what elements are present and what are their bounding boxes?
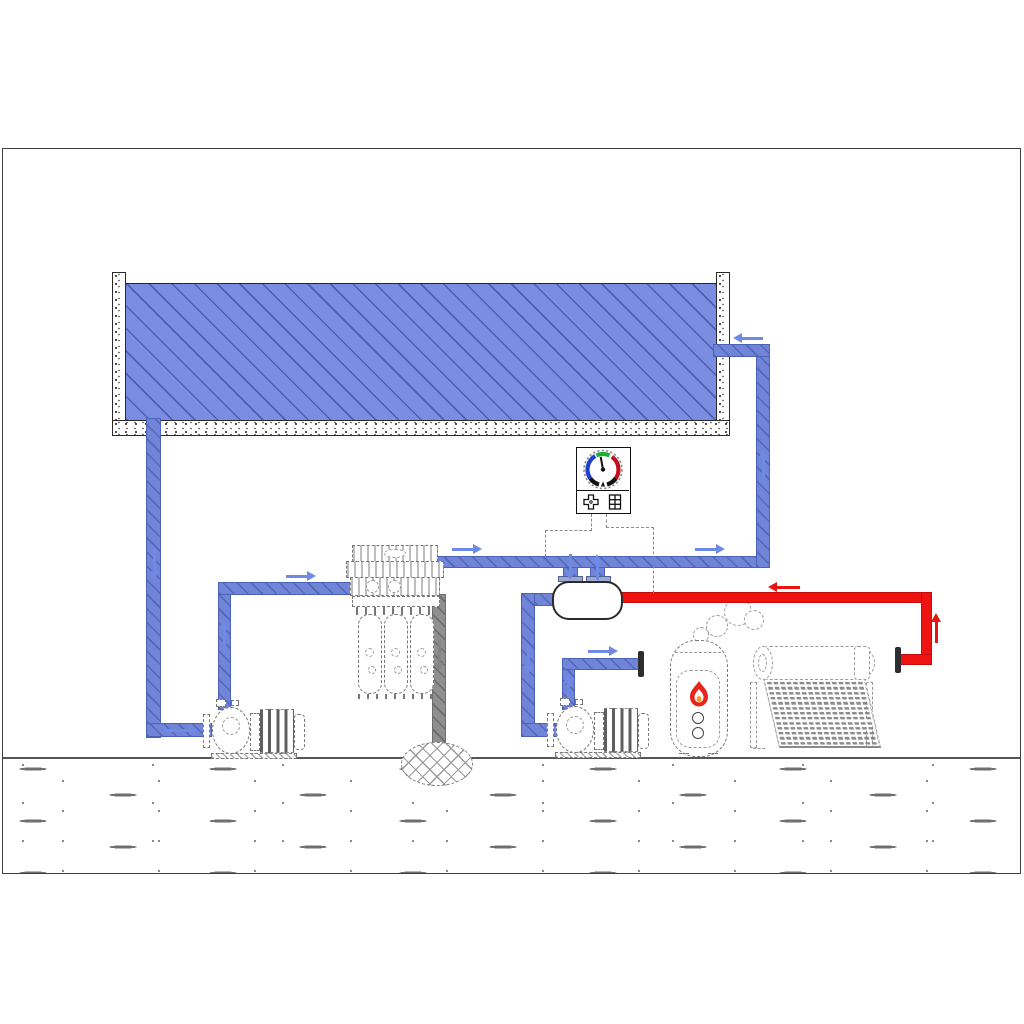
pump-top-fitting xyxy=(560,698,570,706)
solar-foot xyxy=(753,748,765,749)
flow-arrow-left-icon xyxy=(768,582,800,592)
pump-top-fitting xyxy=(231,700,239,706)
cartridge-detail xyxy=(417,648,426,657)
waste-pipe-vertical xyxy=(432,594,446,757)
capped-connection xyxy=(638,651,644,677)
pump2-discharge-pipe xyxy=(562,658,640,670)
flow-arrow-down-icon xyxy=(565,554,575,580)
filter-feet xyxy=(358,694,434,699)
flow-arrow-up-icon xyxy=(758,450,768,484)
pump-volute-eye xyxy=(566,716,584,734)
pump1-to-filter-pipe xyxy=(218,582,352,595)
solar-hot-pipe xyxy=(620,592,932,603)
panel-divider xyxy=(577,490,629,491)
filter-head-lens xyxy=(384,549,406,558)
solar-leg xyxy=(750,682,757,748)
pump-motor-fins xyxy=(260,709,294,753)
pump-top-fitting xyxy=(216,699,226,707)
flow-arrow-right-icon xyxy=(695,544,725,554)
cartridge-detail xyxy=(394,666,402,674)
flame-icon xyxy=(687,680,711,708)
dpad-button-icon xyxy=(582,493,600,511)
heater-top-seam xyxy=(675,652,721,653)
cartridge-detail xyxy=(391,648,400,657)
pump-motor-fins xyxy=(604,708,638,752)
flow-arrow-down-icon xyxy=(434,640,444,672)
solar-tray xyxy=(780,746,880,748)
flow-arrow-left-icon xyxy=(733,333,763,343)
pool-floor-slab xyxy=(112,420,730,436)
flow-arrow-right-icon xyxy=(286,571,316,581)
flow-arrow-right-icon xyxy=(588,646,618,656)
filter-mount-plate xyxy=(352,596,440,607)
flow-arrow-up-icon xyxy=(931,613,941,643)
pool-wall-left xyxy=(112,272,126,436)
heater-knob xyxy=(692,712,704,724)
cartridge-detail xyxy=(365,648,374,657)
heater-foot xyxy=(679,753,689,754)
pump-base xyxy=(211,753,297,759)
pool-water xyxy=(126,283,716,420)
pump-motor-endcap xyxy=(638,713,649,749)
filter-head-row xyxy=(346,561,444,578)
sensor-leader xyxy=(606,527,654,528)
sensor-leader xyxy=(545,530,546,557)
pump-coupling xyxy=(594,712,604,750)
gas-water-heater xyxy=(670,640,728,757)
cartridge-detail xyxy=(368,666,376,674)
pool-return-pipe xyxy=(713,344,770,357)
keypad-grid-icon xyxy=(606,493,624,511)
pump-volute-eye xyxy=(222,717,240,735)
earth-hatch xyxy=(3,759,1020,873)
solar-water-heater xyxy=(748,636,888,758)
filter-head-port xyxy=(366,580,379,593)
pump-base xyxy=(555,752,641,758)
pump-inlet-flange xyxy=(547,713,554,747)
flow-arrow-right-icon xyxy=(452,544,482,554)
secondary-pump xyxy=(547,701,649,758)
heater-knob xyxy=(692,727,704,739)
sensor-leader xyxy=(545,530,592,531)
schematic-canvas xyxy=(0,0,1024,1024)
flow-arrow-right-icon xyxy=(164,725,198,735)
flow-arrow-down-icon xyxy=(523,645,533,675)
pump-coupling xyxy=(250,713,260,751)
controller-panel xyxy=(576,447,631,514)
filter-head-port xyxy=(388,580,401,593)
solar-hot-stub xyxy=(900,654,932,665)
solar-tank-endcap-inner xyxy=(758,654,767,672)
pump-motor-endcap xyxy=(294,714,305,750)
smoke-puff xyxy=(744,610,764,630)
cartridge-detail xyxy=(420,666,428,674)
floor-drain xyxy=(401,742,473,786)
pump-inlet-flange xyxy=(203,714,210,748)
sensor-leader xyxy=(591,514,592,531)
solar-tank-band-right xyxy=(854,646,870,680)
gauge-dial xyxy=(577,448,629,491)
circulation-pump xyxy=(203,702,305,759)
heater-foot xyxy=(708,753,718,754)
sensor-leader xyxy=(606,514,607,528)
heat-exchanger-tank xyxy=(552,581,623,620)
flow-arrow-up-icon xyxy=(592,554,602,580)
pump-top-fitting xyxy=(575,699,583,705)
flow-arrow-down-icon xyxy=(149,548,159,580)
solar-tube-array xyxy=(763,678,881,748)
flow-arrow-up-icon xyxy=(219,620,229,652)
sensor-leader xyxy=(653,527,654,593)
capped-connection-red xyxy=(895,647,901,673)
